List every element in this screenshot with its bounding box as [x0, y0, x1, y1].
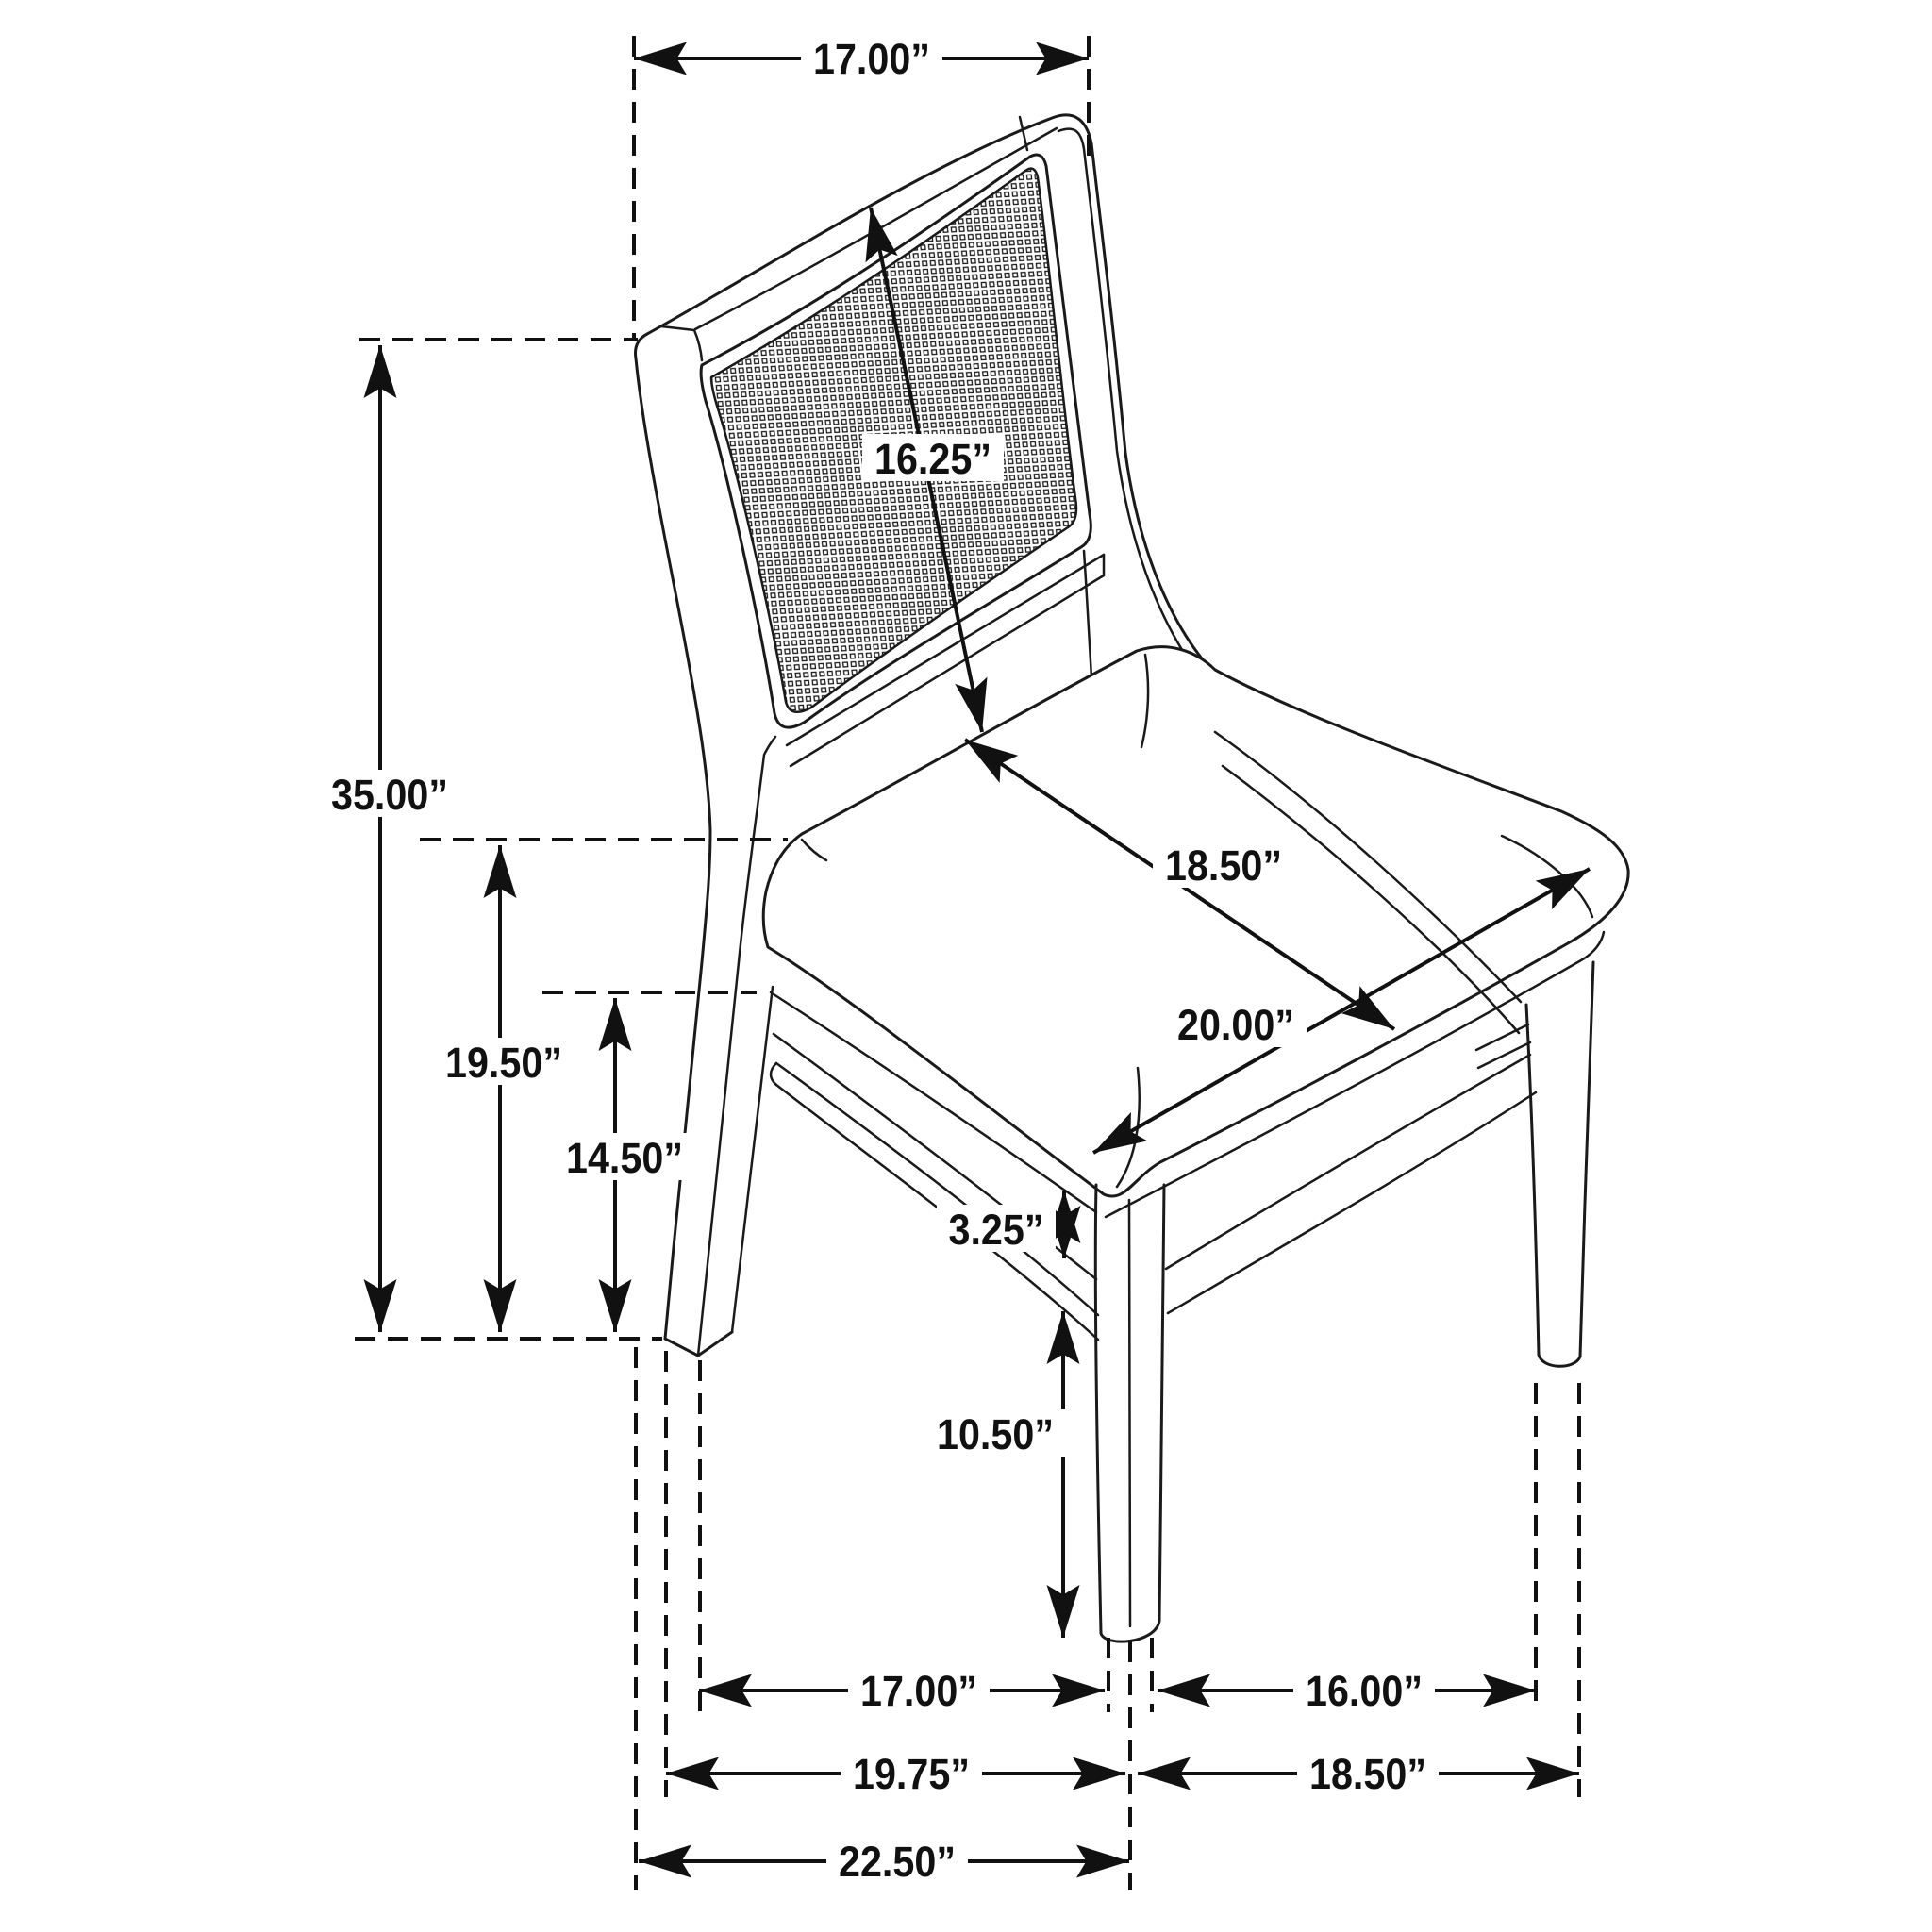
svg-text:22.50”: 22.50” [839, 1838, 956, 1886]
svg-text:16.25”: 16.25” [874, 435, 991, 483]
svg-text:19.50”: 19.50” [445, 1039, 562, 1087]
svg-text:19.75”: 19.75” [853, 1750, 970, 1798]
svg-text:20.00”: 20.00” [1177, 1001, 1294, 1049]
svg-text:14.50”: 14.50” [566, 1134, 683, 1182]
svg-text:3.25”: 3.25” [949, 1206, 1044, 1254]
svg-text:10.50”: 10.50” [937, 1410, 1054, 1458]
svg-text:17.00”: 17.00” [813, 35, 930, 83]
svg-text:35.00”: 35.00” [331, 771, 448, 819]
svg-text:16.00”: 16.00” [1306, 1667, 1423, 1715]
svg-text:17.00”: 17.00” [860, 1667, 977, 1715]
svg-text:18.50”: 18.50” [1165, 841, 1282, 890]
svg-text:18.50”: 18.50” [1309, 1750, 1426, 1798]
